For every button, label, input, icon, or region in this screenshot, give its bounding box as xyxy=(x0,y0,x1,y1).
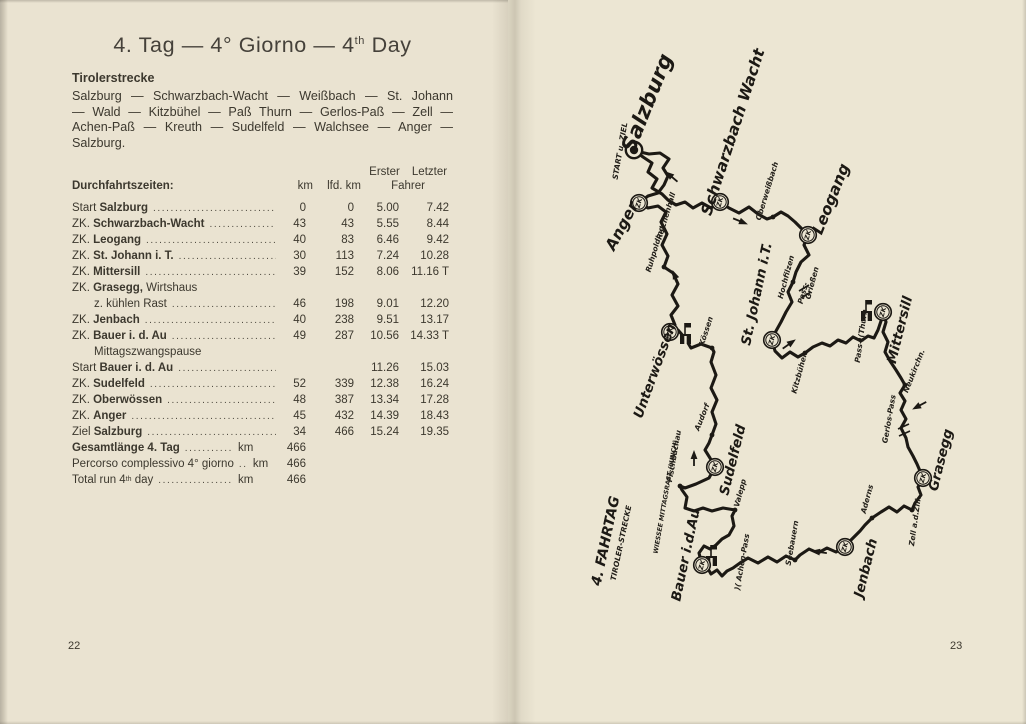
cell-lfd-km: 43 xyxy=(310,216,356,232)
page-edge-top xyxy=(0,0,508,3)
direction-arrow xyxy=(691,450,698,466)
column-header-erster: Erster xyxy=(363,165,406,179)
checkpoint-name: ZK. Grasegg, Wirtshaus xyxy=(72,280,278,296)
map-label-leogang: Leogang xyxy=(809,161,854,237)
cell-lfd-km: 0 xyxy=(310,200,356,216)
cell-lfd-km xyxy=(310,280,356,296)
flag xyxy=(685,323,691,328)
timetable-header: Erster Letzter Durchfahrtszeiten: km lfd… xyxy=(72,165,453,193)
timetable-row: Start Salzburg005.007.42 xyxy=(72,200,453,216)
direction-arrow-tail xyxy=(819,552,827,553)
cell-lfd-km xyxy=(310,360,356,376)
timetable-row: ZK. Leogang40836.469.42 xyxy=(72,232,453,248)
dotted-leader xyxy=(172,330,276,343)
cell-lfd-km: 287 xyxy=(310,328,356,344)
timetable-row: Ziel Salzburg3446615.2419.35 xyxy=(72,424,453,440)
cell-erster xyxy=(356,472,402,488)
cell-letzter xyxy=(402,472,453,488)
town-dot-aderns xyxy=(870,516,875,521)
direction-arrow-head xyxy=(691,450,698,459)
dotted-leader xyxy=(145,266,276,279)
map-label-neukirchn: Neukirchn. xyxy=(901,348,927,394)
checkpoint-name: ZK. Anger xyxy=(72,408,278,424)
checkpoint-name: Start Salzburg xyxy=(72,200,278,216)
map-label-achen-pass: )( Achen-Pass xyxy=(732,532,751,592)
unit-label: km xyxy=(234,440,278,456)
timetable-header-row-1: Erster Letzter xyxy=(72,165,453,179)
left-page-content: 4. Tag — 4° Giorno — 4th Day Tirolerstre… xyxy=(72,33,453,488)
map-label-unterwössen: Unterwössen xyxy=(630,322,679,421)
cell-lfd-km: 339 xyxy=(310,376,356,392)
map-label-kitzbühel: Kitzbühel xyxy=(789,353,808,394)
cell-lfd-km: 387 xyxy=(310,392,356,408)
checkpoint-st-johann: ZK xyxy=(764,332,781,349)
cell-erster: 12.38 xyxy=(356,376,402,392)
cell-km: 43 xyxy=(278,216,310,232)
title-text: 4. Tag — 4° Giorno — 4 xyxy=(113,33,354,57)
checkpoint-name: Mittagszwangspause xyxy=(72,344,278,360)
checkpoint-name: ZK. Jenbach xyxy=(72,312,278,328)
map-label-schwarzbach-wacht: Schwarzbach Wacht xyxy=(698,46,769,218)
dotted-leader xyxy=(153,202,276,215)
cell-km: 30 xyxy=(278,248,310,264)
dotted-leader xyxy=(239,458,247,471)
direction-arrow-tail xyxy=(783,344,790,349)
cell-letzter: 7.42 xyxy=(402,200,453,216)
timetable-row: ZK. Grasegg, Wirtshaus xyxy=(72,280,453,296)
cell-km xyxy=(278,360,310,376)
checkpoint-name: z. kühlen Rast xyxy=(72,296,278,312)
cell-km xyxy=(278,344,310,360)
route-map: ZKZKZKZKZKZKZKZKZKZKSalzburgSchwarzbach … xyxy=(508,0,1026,724)
cell-letzter xyxy=(402,344,453,360)
map-label-kössen: Kössen xyxy=(697,315,715,346)
cell-km: 52 xyxy=(278,376,310,392)
cell-erster xyxy=(356,344,402,360)
route-path xyxy=(634,150,923,576)
dotted-leader xyxy=(158,474,232,487)
page-number-left: 22 xyxy=(68,640,80,652)
town-dot-ruhpolding xyxy=(662,265,667,270)
direction-arrow xyxy=(781,337,798,352)
checkpoint-name: ZK. Bauer i. d. Au xyxy=(72,328,278,344)
direction-arrow xyxy=(911,399,928,413)
checkpoint-mittersill: ZK xyxy=(875,304,892,321)
book-spread: 4. Tag — 4° Giorno — 4th Day Tirolerstre… xyxy=(0,0,1026,724)
dotted-leader xyxy=(145,314,276,327)
cell-letzter: 12.20 xyxy=(402,296,453,312)
right-page: ZKZKZKZKZKZKZKZKZKZKSalzburgSchwarzbach … xyxy=(508,0,1026,724)
checkpoint-name: Gesamtlänge 4. Tagkm xyxy=(72,440,278,456)
map-label-oberweißbach: Oberweißbach xyxy=(754,161,780,222)
cell-letzter: 13.17 xyxy=(402,312,453,328)
timetable-row: ZK. Jenbach402389.5113.17 xyxy=(72,312,453,328)
cell-erster: 14.39 xyxy=(356,408,402,424)
cell-km: 39 xyxy=(278,264,310,280)
cell-erster: 10.56 xyxy=(356,328,402,344)
cell-km: 46 xyxy=(278,296,310,312)
map-label-aderns: Aderns xyxy=(859,483,876,515)
cell-km: 466 xyxy=(278,456,310,472)
cell-letzter: 18.43 xyxy=(402,408,453,424)
dotted-leader xyxy=(147,426,276,439)
page-title: 4. Tag — 4° Giorno — 4th Day xyxy=(72,33,453,58)
cell-km xyxy=(278,280,310,296)
direction-arrow-tail xyxy=(671,176,677,181)
flag xyxy=(711,545,717,550)
direction-arrow-head xyxy=(911,402,922,412)
flag xyxy=(866,300,872,305)
cell-erster: 9.51 xyxy=(356,312,402,328)
cell-erster xyxy=(356,440,402,456)
cell-erster: 6.46 xyxy=(356,232,402,248)
dotted-leader xyxy=(172,298,276,311)
dotted-leader xyxy=(146,234,276,247)
map-label-wiessee-mittagsrast-lunch: WIESSEE MITTAGSRAST (LUNCH) xyxy=(653,440,680,555)
control-house-door xyxy=(684,336,686,344)
cell-lfd-km: 198 xyxy=(310,296,356,312)
cell-km: 45 xyxy=(278,408,310,424)
cell-km: 40 xyxy=(278,232,310,248)
town-dot-fischbachau xyxy=(678,484,683,489)
cell-letzter: 15.03 xyxy=(402,360,453,376)
cell-km: 0 xyxy=(278,200,310,216)
timetable-row: Percorso complessivo 4° giornokm466 xyxy=(72,456,453,472)
page-edge-right xyxy=(1022,0,1026,724)
timetable-row: ZK. Bauer i. d. Au4928710.5614.33 T xyxy=(72,328,453,344)
cell-letzter: 10.28 xyxy=(402,248,453,264)
timetable-row: Gesamtlänge 4. Tagkm466 xyxy=(72,440,453,456)
timetable-row: ZK. Mittersill391528.0611.16 T xyxy=(72,264,453,280)
cell-lfd-km: 83 xyxy=(310,232,356,248)
cell-km: 49 xyxy=(278,328,310,344)
cell-letzter xyxy=(402,456,453,472)
timetable-row: Total run 4th daykm466 xyxy=(72,472,453,488)
cell-letzter: 16.24 xyxy=(402,376,453,392)
cell-km: 466 xyxy=(278,440,310,456)
cell-erster: 9.01 xyxy=(356,296,402,312)
left-page: 4. Tag — 4° Giorno — 4th Day Tirolerstre… xyxy=(0,0,508,724)
checkpoint-name: ZK. Sudelfeld xyxy=(72,376,278,392)
title-superscript: th xyxy=(355,35,365,47)
cell-erster: 7.24 xyxy=(356,248,402,264)
cell-erster: 15.24 xyxy=(356,424,402,440)
section-heading: Tirolerstrecke xyxy=(72,71,453,85)
checkpoint-name: Percorso complessivo 4° giornokm xyxy=(72,456,278,472)
cell-letzter: 11.16 T xyxy=(402,264,453,280)
dotted-leader xyxy=(178,362,276,375)
title-text-after: Day xyxy=(365,33,412,57)
cell-lfd-km: 238 xyxy=(310,312,356,328)
dotted-leader xyxy=(210,218,277,231)
map-label-audorf: Audorf xyxy=(692,400,712,432)
checkpoint-name: Ziel Salzburg xyxy=(72,424,278,440)
checkpoint-jenbach: ZK xyxy=(837,539,854,556)
map-label-anger: Anger xyxy=(601,198,643,255)
cell-letzter: 14.33 T xyxy=(402,328,453,344)
column-header-lfd-km: lfd. km xyxy=(317,179,363,193)
dotted-leader xyxy=(185,442,232,455)
cell-lfd-km xyxy=(310,472,356,488)
dotted-leader xyxy=(179,250,276,263)
column-header-km: km xyxy=(285,179,317,193)
cell-km: 34 xyxy=(278,424,310,440)
cell-letzter xyxy=(402,440,453,456)
cell-lfd-km xyxy=(310,456,356,472)
timetable-row: Start Bauer i. d. Au11.2615.03 xyxy=(72,360,453,376)
cell-erster: 5.55 xyxy=(356,216,402,232)
cell-lfd-km: 152 xyxy=(310,264,356,280)
cell-erster: 11.26 xyxy=(356,360,402,376)
map-label-zell-a-d-zill: Zell a.d.Zill. xyxy=(907,495,923,547)
map-label-gerlos-pass: Gerlos-Pass xyxy=(880,393,898,444)
town-dot-hochfilzen xyxy=(791,280,796,285)
timetable-row: Mittagszwangspause xyxy=(72,344,453,360)
cell-letzter: 8.44 xyxy=(402,216,453,232)
unit-label: km xyxy=(234,472,278,488)
town-dot-valepp xyxy=(733,508,738,513)
dotted-leader xyxy=(150,378,276,391)
checkpoint-name: ZK. Mittersill xyxy=(72,264,278,280)
page-number-right: 23 xyxy=(950,640,962,652)
column-header-durchfahrtszeiten: Durchfahrtszeiten: xyxy=(72,179,285,193)
cell-km: 48 xyxy=(278,392,310,408)
checkpoint-name: ZK. Schwarzbach-Wacht xyxy=(72,216,278,232)
checkpoint-bauer-i-d-au: ZK xyxy=(694,557,711,574)
checkpoint-name: ZK. Leogang xyxy=(72,232,278,248)
town-dot-audorf xyxy=(710,433,715,438)
cell-km: 466 xyxy=(278,472,310,488)
column-header-fahrer: Fahrer xyxy=(363,179,453,193)
timetable-row: ZK. Sudelfeld5233912.3816.24 xyxy=(72,376,453,392)
column-header-letzter: Letzter xyxy=(406,165,453,179)
checkpoint-name: ZK. St. Johann i. T. xyxy=(72,248,278,264)
timetable-row: ZK. Anger4543214.3918.43 xyxy=(72,408,453,424)
cell-letzter: 19.35 xyxy=(402,424,453,440)
direction-arrow-head xyxy=(738,218,749,228)
map-label-jenbach: Jenbach xyxy=(850,537,881,602)
direction-arrow-tail xyxy=(919,402,926,406)
cell-letzter xyxy=(402,280,453,296)
cell-letzter: 9.42 xyxy=(402,232,453,248)
cell-letzter: 17.28 xyxy=(402,392,453,408)
dotted-leader xyxy=(131,410,276,423)
cell-erster: 13.34 xyxy=(356,392,402,408)
checkpoint-name: Start Bauer i. d. Au xyxy=(72,360,278,376)
cell-lfd-km: 432 xyxy=(310,408,356,424)
direction-arrow-tail xyxy=(733,218,740,221)
timetable-header-row-2: Durchfahrtszeiten: km lfd. km Fahrer xyxy=(72,179,453,193)
checkpoint-name: Total run 4th daykm xyxy=(72,472,278,488)
dotted-leader xyxy=(167,394,276,407)
timetable-row: ZK. Oberwössen4838713.3417.28 xyxy=(72,392,453,408)
cell-lfd-km xyxy=(310,440,356,456)
timetable-body: Start Salzburg005.007.42ZK. Schwarzbach-… xyxy=(72,200,453,488)
timetable-row: ZK. St. Johann i. T.301137.2410.28 xyxy=(72,248,453,264)
cell-lfd-km: 113 xyxy=(310,248,356,264)
checkpoint-name: ZK. Oberwössen xyxy=(72,392,278,408)
cell-erster: 5.00 xyxy=(356,200,402,216)
map-label-grasegg: Grasegg xyxy=(926,427,957,493)
timetable-row: z. kühlen Rast461989.0112.20 xyxy=(72,296,453,312)
route-description: Salzburg — Schwarzbach-Wacht — Weißbach … xyxy=(72,89,453,151)
town-dot-koessen xyxy=(710,346,715,351)
cell-lfd-km xyxy=(310,344,356,360)
direction-arrow xyxy=(732,215,749,227)
cell-km: 40 xyxy=(278,312,310,328)
map-label-st-johann-i-t: St. Johann i.T. xyxy=(738,241,775,347)
cell-erster xyxy=(356,280,402,296)
cell-erster xyxy=(356,456,402,472)
cell-erster: 8.06 xyxy=(356,264,402,280)
timetable-row: ZK. Schwarzbach-Wacht43435.558.44 xyxy=(72,216,453,232)
cell-lfd-km: 466 xyxy=(310,424,356,440)
town-dot-oberweissbach xyxy=(771,215,776,220)
